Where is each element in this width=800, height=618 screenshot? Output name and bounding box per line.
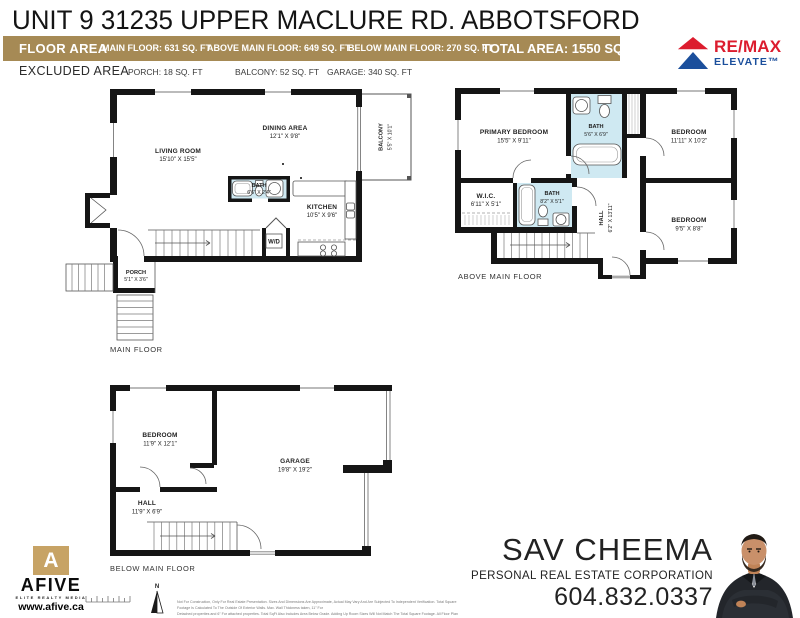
room-label-bedroom: BEDROOM: [142, 432, 177, 439]
porch: PORCH 5'1" X 3'6": [113, 262, 155, 293]
toilet-icon: [539, 205, 548, 217]
remax-wordmark: RE/MAX: [714, 38, 781, 55]
exterior-stairs-left: [66, 264, 113, 291]
floor-area-bar: FLOOR AREA MAIN FLOOR: 631 SQ. FT ABOVE …: [3, 36, 620, 61]
remax-elevate-logo: RE/MAX ELEVATE™: [676, 35, 781, 71]
room-dims-bedroom: 11'9" X 12'1": [143, 442, 176, 448]
room-dims-garage: 19'8" X 19'2": [278, 468, 312, 474]
room-dims-balcony: 5'5" X 10'1": [388, 124, 394, 151]
excluded-area-label: EXCLUDED AREA: [19, 64, 129, 78]
bedroom1-door-arc: [646, 138, 664, 156]
exterior-stairs-down: [117, 295, 153, 340]
excluded-area-row: EXCLUDED AREA PORCH: 18 SQ. FT BALCONY: …: [3, 64, 620, 80]
main-floor-caption: MAIN FLOOR: [110, 345, 163, 354]
agent-phone[interactable]: 604.832.0337: [453, 583, 713, 612]
room-label-balcony: BALCONY: [379, 123, 385, 151]
agent-block: SAV CHEEMA PERSONAL REAL ESTATE CORPORAT…: [453, 532, 713, 612]
kitchen-sink-icon: [347, 203, 355, 210]
scale-bar: [84, 593, 132, 605]
page-title: UNIT 9 31235 UPPER MACLURE RD. ABBOTSFOR…: [12, 5, 640, 36]
porch-door-arc: [118, 230, 144, 256]
stove-icon: [320, 245, 325, 250]
room-label-dining-area: DINING AREA: [263, 125, 308, 132]
room-label-bedroom1: BEDROOM: [671, 129, 706, 136]
room-dims-bath1: 5'6" X 6'9": [584, 132, 608, 138]
excluded-garage: GARAGE: 340 SQ. FT: [327, 64, 412, 77]
room-dims-bedroom2: 9'5" X 8'8": [675, 227, 702, 233]
below-main-floor-caption: BELOW MAIN FLOOR: [110, 564, 195, 573]
room-label-bath2: BATH: [544, 191, 559, 197]
disclaimer-line1: Not For Construction, Only For Real Esta…: [177, 600, 459, 612]
main-bath: BATH 6'6" X 2'4": [228, 176, 290, 202]
washer-dryer-label: W/D: [268, 240, 280, 246]
main-floor-windows: [110, 89, 361, 171]
main-stairs: [148, 230, 260, 256]
room-label-hall: HALL: [138, 500, 156, 507]
room-label-primary-bedroom: PRIMARY BEDROOM: [480, 129, 548, 136]
afive-website[interactable]: www.afive.ca: [14, 601, 88, 613]
kitchen-island: [293, 181, 348, 196]
floor-plan-page: UNIT 9 31235 UPPER MACLURE RD. ABBOTSFOR…: [0, 0, 800, 618]
bedroom-door-arc: [140, 467, 160, 487]
excluded-balcony: BALCONY: 52 SQ. FT: [235, 64, 319, 77]
room-dims-bedroom1: 11'11" X 10'2": [671, 139, 707, 145]
total-area: TOTAL AREA: 1550 SQ. FT: [482, 36, 646, 61]
room-label-living-room: LIVING ROOM: [155, 148, 201, 155]
afive-mark: A: [33, 546, 69, 575]
room-label-garage: GARAGE: [280, 458, 310, 465]
balcony: BALCONY 5'5" X 10'1": [362, 94, 411, 180]
agent-name: SAV CHEEMA: [453, 532, 713, 568]
room-dims-primary-bedroom: 15'5" X 9'11": [497, 139, 530, 145]
wic-shelving: [462, 213, 512, 225]
excluded-porch: PORCH: 18 SQ. FT: [128, 64, 203, 77]
disclaimer-text: Not For Construction, Only For Real Esta…: [177, 600, 459, 618]
room-label-hall: HALL: [599, 210, 605, 225]
room-dims-bath: 6'6" X 2'4": [247, 190, 271, 196]
room-label-porch: PORCH: [126, 270, 146, 276]
below-main-floor-area: BELOW MAIN FLOOR: 270 SQ. FT: [348, 36, 493, 61]
below-stairs: [147, 522, 237, 550]
afive-logo: A AFIVE ELITE REALTY MEDIA www.afive.ca: [14, 546, 88, 613]
above-main-floor-area: ABOVE MAIN FLOOR: 649 SQ. FT: [207, 36, 351, 61]
below-floor-walls: [110, 385, 392, 556]
above-main-floor-caption: ABOVE MAIN FLOOR: [458, 272, 542, 281]
main-floor-plan: BALCONY 5'5" X 10'1" BATH 6'6" X 2'4": [60, 85, 420, 357]
afive-name: AFIVE: [14, 576, 88, 594]
room-dims-dining-area: 12'1" X 9'8": [270, 134, 301, 140]
room-dims-kitchen: 10'5" X 9'6": [307, 213, 338, 219]
room-dims-hall: 11'9" X 6'9": [132, 510, 162, 516]
bedroom2-door-arc: [646, 232, 664, 250]
north-arrow: N: [146, 584, 168, 616]
room-dims-living-room: 15'10" X 15'5": [159, 157, 196, 163]
below-main-floor-plan: BEDROOM 11'9" X 12'1" GARAGE 19'8" X 19'…: [90, 375, 410, 575]
room-label-bedroom2: BEDROOM: [671, 217, 706, 224]
toilet-icon: [598, 96, 611, 104]
above-bath-2: BATH 8'2" X 5'1": [517, 183, 596, 227]
wic-door-arc: [513, 160, 531, 178]
nook-door-lines: [91, 198, 106, 223]
above-main-floor-plan: BATH 5'6" X 6'9" BATH 8'2" X 5'1": [440, 82, 760, 287]
compass-needle-icon: [149, 590, 165, 614]
remax-elevate-text: ELEVATE™: [714, 57, 781, 68]
room-label-kitchen: KITCHEN: [307, 204, 337, 211]
room-label-wic: W.I.C.: [477, 193, 496, 200]
agent-headshot: [708, 524, 800, 618]
above-stairs: [504, 233, 595, 258]
main-floor-walls: [85, 89, 362, 262]
room-label-bath1: BATH: [588, 124, 603, 130]
floor-area-label: FLOOR AREA: [19, 36, 107, 61]
room-label-bath: BATH: [251, 183, 266, 189]
afive-tagline: ELITE REALTY MEDIA: [14, 595, 88, 600]
main-floor-area: MAIN FLOOR: 631 SQ. FT: [102, 36, 211, 61]
room-dims-bath2: 8'2" X 5'1": [540, 199, 564, 205]
agent-title: PERSONAL REAL ESTATE CORPORATION: [453, 570, 713, 582]
linen-closet: [629, 94, 638, 134]
closet-door-arc: [190, 468, 206, 484]
porch-door-gap: [118, 256, 144, 262]
room-dims-hall: 6'2" X 13'11": [608, 203, 614, 232]
above-bath-1: BATH 5'6" X 6'9": [571, 94, 622, 178]
remax-balloon-icon: [676, 35, 710, 71]
disclaimer-line2: Detached properties and 6" For attached …: [177, 612, 459, 618]
room-dims-porch: 5'1" X 3'6": [124, 277, 148, 283]
garage-entry-door-arc: [237, 525, 261, 549]
laundry-closet: W/D: [262, 218, 290, 256]
entry-door-arc: [612, 257, 630, 275]
room-dims-wic: 6'11" X 5'1": [471, 202, 501, 208]
